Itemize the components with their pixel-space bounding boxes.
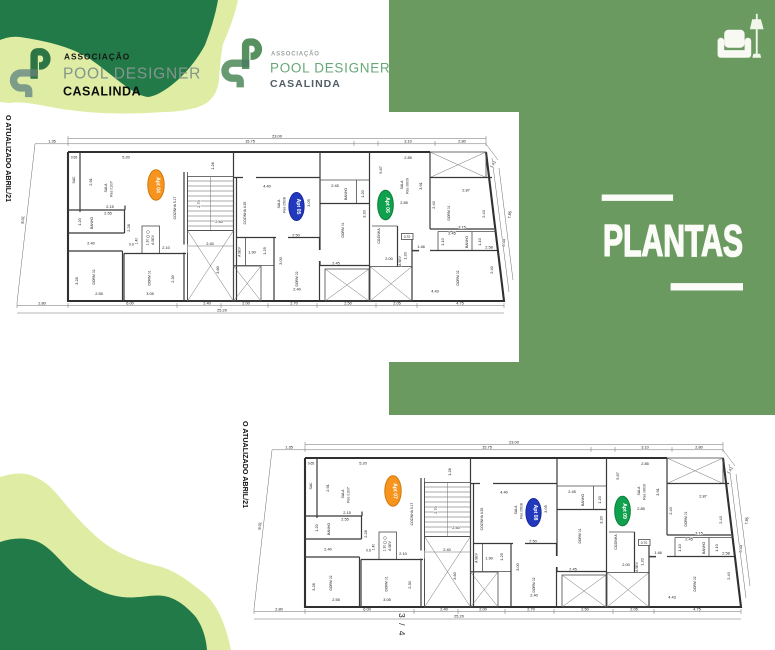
svg-text:Apt 07: Apt 07 bbox=[392, 483, 398, 499]
svg-text:PLANTAS: PLANTAS bbox=[603, 217, 743, 266]
svg-text:CASALINDA: CASALINDA bbox=[63, 85, 141, 99]
svg-text:POOL DESIGNER: POOL DESIGNER bbox=[63, 66, 201, 83]
svg-text:POOL DESIGNER: POOL DESIGNER bbox=[270, 61, 390, 76]
svg-text:ASSOCIAÇÃO: ASSOCIAÇÃO bbox=[271, 51, 320, 58]
svg-text:Apt 08: Apt 08 bbox=[532, 505, 538, 521]
svg-text:ASSOCIAÇÃO: ASSOCIAÇÃO bbox=[64, 52, 130, 62]
svg-text:CASALINDA: CASALINDA bbox=[270, 78, 341, 90]
svg-text:3 / 4: 3 / 4 bbox=[397, 613, 407, 637]
svg-text:Apt 06: Apt 06 bbox=[384, 197, 390, 213]
svg-text:Apt 09: Apt 09 bbox=[621, 503, 627, 519]
svg-text:Apt 05: Apt 05 bbox=[295, 199, 301, 215]
svg-text:Apt 04: Apt 04 bbox=[155, 177, 161, 193]
